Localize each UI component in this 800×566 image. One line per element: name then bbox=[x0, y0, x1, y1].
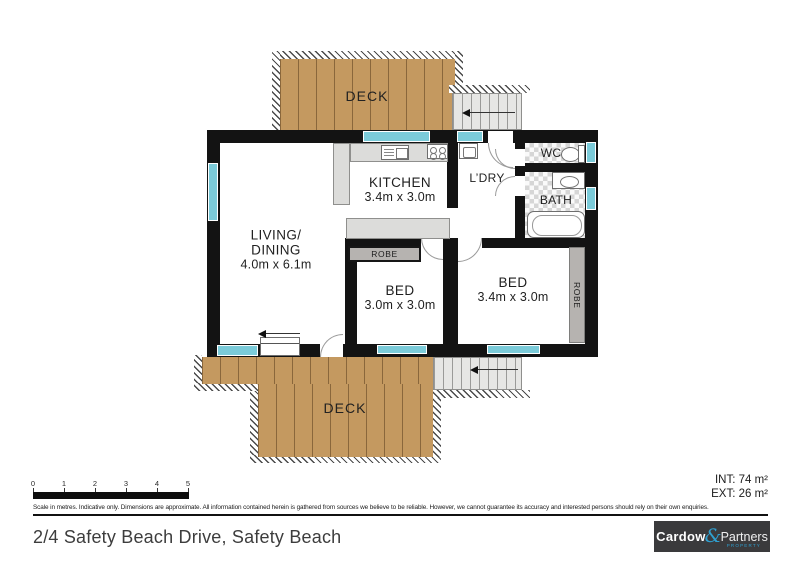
logo-ampersand-icon: & bbox=[705, 525, 722, 547]
floorplan-canvas: DECK bbox=[0, 0, 800, 566]
deck-top-label: DECK bbox=[346, 88, 389, 104]
scale-bar bbox=[33, 492, 189, 499]
wc-door-gap bbox=[515, 149, 525, 166]
kitchen-counter-left bbox=[333, 143, 350, 205]
wall-kitchen-laundry bbox=[447, 143, 458, 208]
window-bed1-bottom bbox=[377, 345, 427, 354]
stairs-top-arrow-line bbox=[470, 112, 515, 113]
living-label-line2: DINING bbox=[241, 243, 312, 258]
toilet-cistern-icon bbox=[578, 145, 585, 163]
stairs-top-arrow-icon bbox=[462, 109, 470, 117]
sink-basin-icon bbox=[396, 148, 408, 159]
scale-tick-label: 5 bbox=[186, 479, 190, 488]
bath-label: BATH bbox=[540, 193, 572, 207]
bath-door-gap bbox=[515, 176, 525, 196]
basin-icon bbox=[560, 176, 579, 188]
bed1-robe-label: ROBE bbox=[371, 249, 398, 259]
kitchen-label: KITCHEN 3.4m x 3.0m bbox=[365, 175, 436, 205]
window-living-bottom bbox=[217, 345, 258, 356]
kitchen-bench bbox=[346, 218, 450, 239]
sink-drainer-icon bbox=[384, 149, 394, 150]
bed1-door-arc bbox=[421, 238, 443, 260]
burner-icon bbox=[439, 153, 446, 160]
bed2-dims: 3.4m x 3.0m bbox=[478, 290, 549, 305]
sliding-door-arrow-icon bbox=[258, 330, 266, 338]
bed1-dims: 3.0m x 3.0m bbox=[365, 298, 436, 313]
bed1-robe: ROBE bbox=[348, 246, 421, 262]
living-label-line1: LIVING/ bbox=[241, 228, 312, 243]
bed2-robe: ROBE bbox=[569, 247, 585, 343]
deck-bottom-hatch-notch bbox=[194, 383, 258, 391]
wall-laundry-wc-stub2 bbox=[515, 166, 525, 176]
laundry-label: L’DRY bbox=[469, 171, 504, 185]
scale-tick-label: 2 bbox=[93, 479, 97, 488]
scale-tick-label: 3 bbox=[124, 479, 128, 488]
cooktop-icon bbox=[427, 144, 448, 159]
bed2-door-arc bbox=[458, 238, 482, 262]
sliding-door-track bbox=[261, 343, 299, 344]
laundry-tub-icon bbox=[459, 143, 478, 159]
footer-divider bbox=[33, 514, 768, 516]
deck-bottom-label: DECK bbox=[324, 400, 367, 416]
bed2-label-text: BED bbox=[478, 275, 549, 290]
wc-label: WC bbox=[541, 146, 562, 160]
deck-bottom-upper bbox=[202, 357, 433, 384]
disclaimer-text: Scale in metres. Indicative only. Dimens… bbox=[33, 504, 709, 511]
interior-area: INT: 74 m² bbox=[711, 473, 768, 487]
bed1-label-text: BED bbox=[365, 283, 436, 298]
kitchen-label-text: KITCHEN bbox=[365, 175, 436, 190]
wall-laundry-bath-stub bbox=[515, 196, 525, 248]
logo-tagline: PROPERTY bbox=[727, 543, 761, 548]
living-label: LIVING/ DINING 4.0m x 6.1m bbox=[241, 228, 312, 273]
deck-bottom-hatch-left2 bbox=[250, 391, 258, 457]
logo-partners: Partners bbox=[721, 530, 768, 544]
vanity-icon bbox=[552, 172, 585, 189]
entry-door-gap bbox=[488, 131, 513, 143]
sliding-door-arrow-line bbox=[266, 333, 300, 334]
wall-wc-bath bbox=[525, 163, 585, 172]
deck-door-arc bbox=[320, 334, 343, 357]
window-laundry-top bbox=[457, 131, 483, 142]
tub-bowl-icon bbox=[463, 147, 476, 158]
burner-icon bbox=[430, 153, 437, 160]
window-bath-right bbox=[586, 187, 596, 210]
kitchen-sink-icon bbox=[381, 145, 409, 160]
kitchen-dims: 3.4m x 3.0m bbox=[365, 190, 436, 205]
stairs-bottom-arrow-line bbox=[478, 369, 518, 370]
deck-top-hatch-top bbox=[272, 51, 463, 59]
stairs-bottom-arrow-icon bbox=[470, 366, 478, 374]
deck-top-hatch-left bbox=[272, 51, 280, 130]
living-dims: 4.0m x 6.1m bbox=[241, 258, 312, 273]
sliding-door bbox=[260, 337, 300, 356]
stairs-bottom-hatch bbox=[433, 390, 530, 398]
deck-bottom-hatch-right bbox=[433, 390, 441, 457]
bathtub-inner-icon bbox=[532, 215, 582, 236]
window-living-left bbox=[208, 163, 218, 221]
stairs-top-hatch bbox=[449, 85, 530, 93]
scale-tick-label: 1 bbox=[62, 479, 66, 488]
deck-bottom-hatch-left1 bbox=[194, 355, 202, 385]
bathtub-icon bbox=[527, 211, 585, 238]
area-summary: INT: 74 m² EXT: 26 m² bbox=[711, 473, 768, 501]
bed2-robe-label: ROBE bbox=[572, 282, 582, 309]
bed1-label: BED 3.0m x 3.0m bbox=[365, 283, 436, 313]
window-kitchen-top bbox=[363, 131, 430, 142]
deck-bottom-lower bbox=[258, 384, 433, 457]
logo-name: Cardow bbox=[656, 529, 705, 544]
window-bed2-bottom bbox=[487, 345, 540, 354]
window-wc-right bbox=[586, 142, 596, 163]
property-address: 2/4 Safety Beach Drive, Safety Beach bbox=[33, 527, 341, 548]
scale-tick-label: 4 bbox=[155, 479, 159, 488]
bed2-label: BED 3.4m x 3.0m bbox=[478, 275, 549, 305]
scale-tick-label: 0 bbox=[31, 479, 35, 488]
exterior-area: EXT: 26 m² bbox=[711, 487, 768, 501]
wc-door-arc bbox=[495, 149, 515, 169]
wall-bed1-bed2 bbox=[443, 238, 458, 344]
agency-logo: Cardow & Partners PROPERTY bbox=[654, 521, 770, 552]
